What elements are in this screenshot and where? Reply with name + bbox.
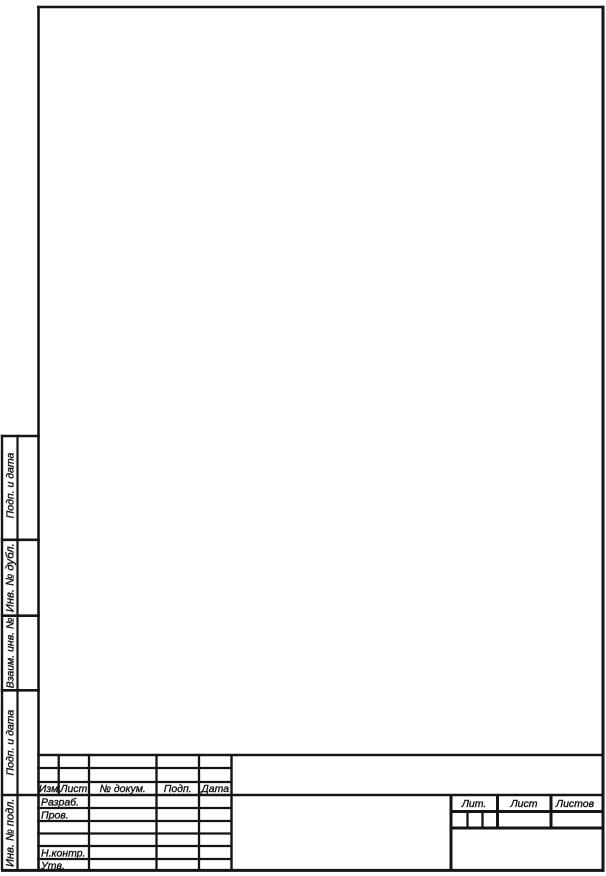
svg-text:Взаим. инв. №: Взаим. инв. № xyxy=(5,618,17,689)
svg-text:Разраб.: Разраб. xyxy=(41,797,79,809)
svg-text:Пров.: Пров. xyxy=(41,810,69,822)
svg-text:№ докум.: № докум. xyxy=(100,783,146,795)
svg-text:Листов: Листов xyxy=(555,798,595,810)
svg-text:Подп. и дата: Подп. и дата xyxy=(5,710,17,776)
svg-text:Лит.: Лит. xyxy=(461,798,487,810)
svg-text:Инв. № дубл.: Инв. № дубл. xyxy=(5,543,17,612)
svg-text:Утв.: Утв. xyxy=(40,860,65,872)
svg-text:Подп. и дата: Подп. и дата xyxy=(5,452,17,518)
svg-text:Дата: Дата xyxy=(200,783,229,795)
svg-text:Изм: Изм xyxy=(39,783,58,795)
svg-text:Лист: Лист xyxy=(509,798,537,810)
svg-text:Инв. № подл.: Инв. № подл. xyxy=(5,799,17,867)
svg-text:Н.контр.: Н.контр. xyxy=(41,848,85,860)
svg-text:Подп.: Подп. xyxy=(164,783,192,795)
svg-text:Лист: Лист xyxy=(59,783,87,795)
